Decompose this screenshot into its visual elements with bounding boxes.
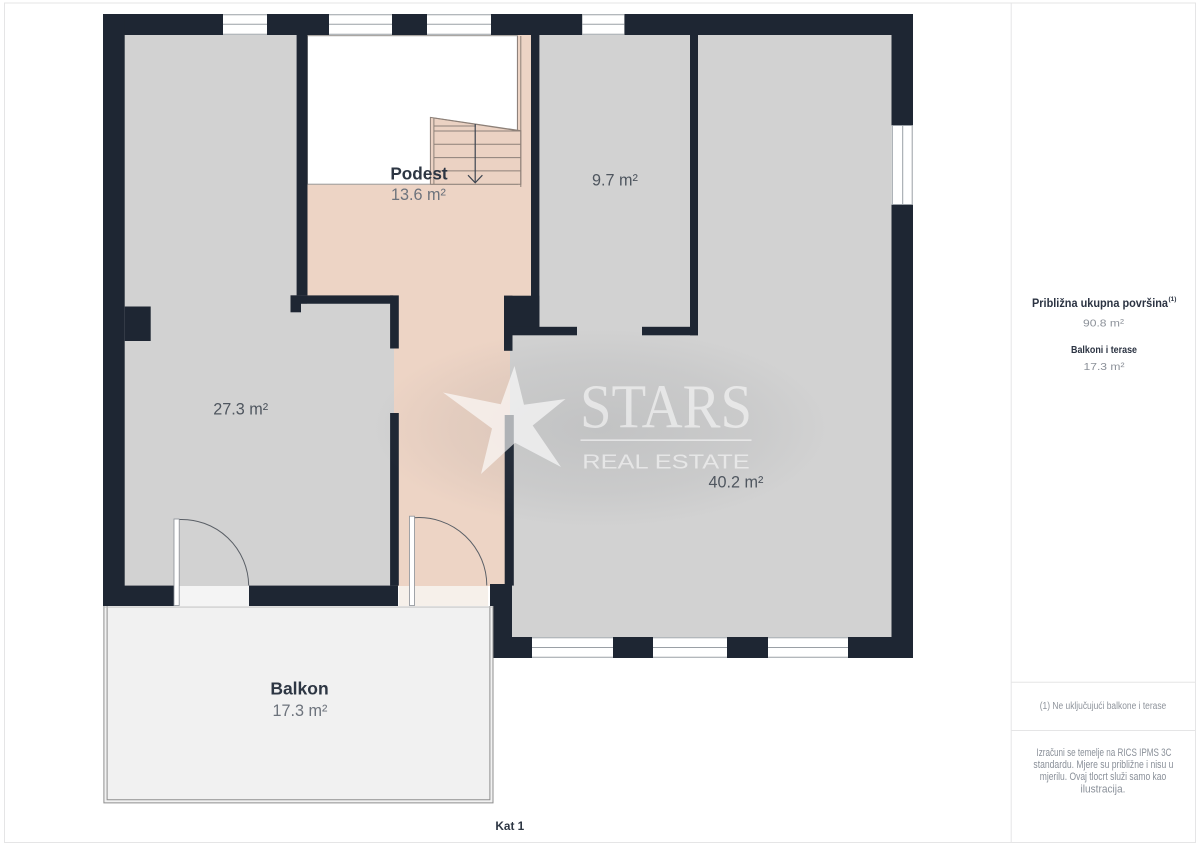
svg-text:(1) Ne uključujući balkone i t: (1) Ne uključujući balkone i terase [1040,701,1167,712]
svg-text:40.2 m²: 40.2 m² [709,473,764,491]
svg-text:17.3 m²: 17.3 m² [273,702,328,720]
svg-text:Balkon: Balkon [270,678,328,698]
svg-text:mjerilu. Ovaj tlocrt služi sam: mjerilu. Ovaj tlocrt služi samo kao [1040,771,1167,783]
svg-text:17.3 m²: 17.3 m² [1084,361,1126,373]
svg-text:ilustracija.: ilustracija. [1081,783,1126,795]
svg-text:STARS: STARS [580,374,752,442]
svg-text:(1): (1) [1169,296,1177,303]
svg-text:90.8 m²: 90.8 m² [1083,318,1125,330]
svg-text:Podest: Podest [390,164,448,184]
svg-text:Izračuni se temelje na RICS IP: Izračuni se temelje na RICS IPMS 3C [1037,747,1172,759]
svg-text:Približna ukupna površina: Približna ukupna površina [1032,296,1168,310]
svg-text:Balkoni i terase: Balkoni i terase [1071,345,1137,356]
svg-text:Kat 1: Kat 1 [495,819,524,833]
svg-text:standardu. Mjere su približne: standardu. Mjere su približne i nisu u [1033,759,1173,771]
svg-text:27.3 m²: 27.3 m² [213,401,268,419]
svg-text:REAL ESTATE: REAL ESTATE [582,450,750,473]
svg-text:13.6 m²: 13.6 m² [391,186,446,204]
svg-text:9.7 m²: 9.7 m² [592,171,638,189]
